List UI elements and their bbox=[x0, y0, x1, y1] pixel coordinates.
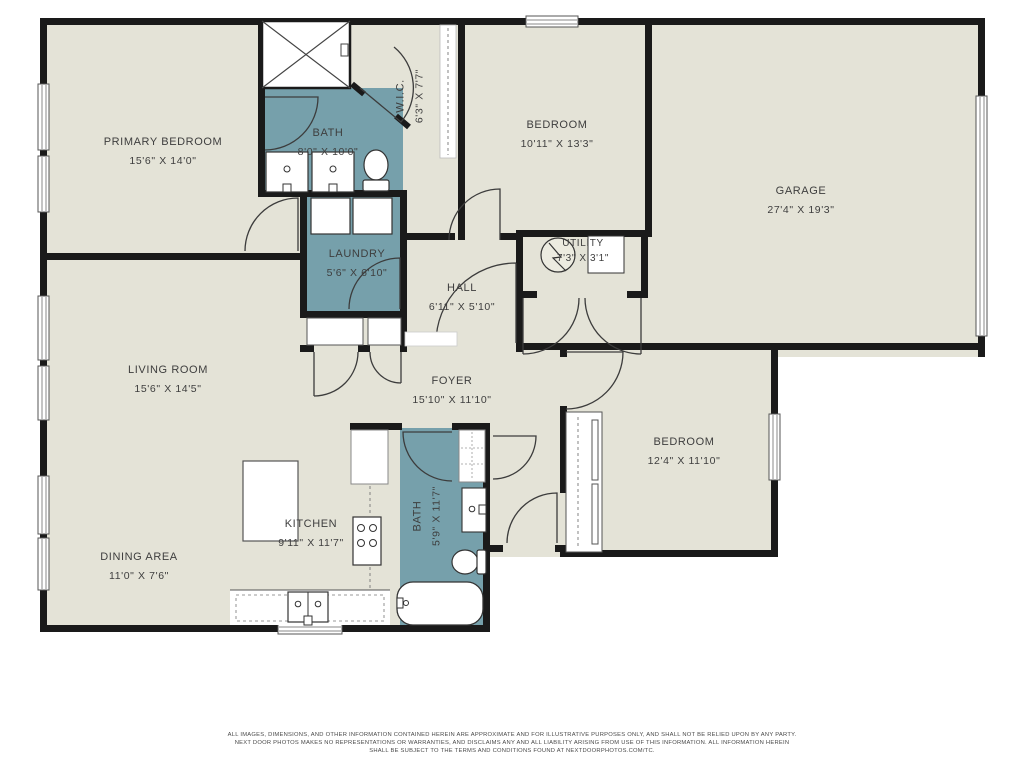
stove-icon bbox=[353, 517, 381, 565]
window-icon bbox=[526, 16, 578, 27]
room-label-bath-lower: BATH 5'9" X 11'7" bbox=[408, 486, 447, 546]
room-label-foyer: FOYER 15'10" X 11'10" bbox=[412, 371, 491, 410]
disclaimer-line: SHALL BE SUBJECT TO THE TERMS AND CONDIT… bbox=[0, 747, 1024, 755]
closet-icon bbox=[368, 318, 401, 345]
threshold bbox=[405, 332, 457, 346]
window-icon bbox=[38, 84, 49, 150]
closet-icon bbox=[307, 318, 363, 345]
window-icon bbox=[976, 96, 987, 336]
toilet-icon bbox=[363, 150, 389, 191]
room-label-garage: GARAGE 27'4" X 19'3" bbox=[767, 181, 834, 220]
window-icon bbox=[38, 296, 49, 360]
window-icon bbox=[38, 476, 49, 534]
shower-icon bbox=[262, 21, 350, 88]
disclaimer-line: ALL IMAGES, DIMENSIONS, AND OTHER INFORM… bbox=[0, 731, 1024, 739]
disclaimer-line: NEXT DOOR PHOTOS MAKES NO REPRESENTATION… bbox=[0, 739, 1024, 747]
room-label-bedroom-right: BEDROOM 12'4" X 11'10" bbox=[648, 432, 721, 471]
room-label-bath-primary: BATH 8'0" X 10'0" bbox=[298, 123, 359, 162]
room-label-laundry: LAUNDRY 5'6" X 6'10" bbox=[327, 244, 388, 283]
room-label-kitchen: KITCHEN 9'11" X 11'7" bbox=[278, 514, 344, 553]
floor-areas bbox=[40, 18, 985, 632]
wardrobe-icon bbox=[440, 25, 456, 158]
room-label-dining-area: DINING AREA 11'0" X 7'6" bbox=[100, 547, 178, 586]
room-label-utility: UTILITY 7'3" X 3'1" bbox=[557, 236, 609, 266]
room-label-hall: HALL 6'11" X 5'10" bbox=[429, 278, 495, 317]
wardrobe-icon bbox=[566, 412, 602, 552]
pantry-icon bbox=[459, 430, 485, 482]
window-icon bbox=[38, 366, 49, 420]
kitchen-sink-icon bbox=[288, 592, 328, 625]
room-label-primary-bedroom: PRIMARY BEDROOM 15'6" X 14'0" bbox=[104, 132, 223, 171]
sink-icon bbox=[462, 488, 486, 532]
room-label-wic: W.I.C. 6'3" X 7'7" bbox=[391, 69, 430, 123]
window-icon bbox=[38, 538, 49, 590]
bathtub-icon bbox=[397, 582, 483, 625]
room-label-bedroom-top: BEDROOM 10'11" X 13'3" bbox=[521, 115, 594, 154]
floor-plan-page: PRIMARY BEDROOM 15'6" X 14'0" BATH 8'0" … bbox=[0, 0, 1024, 768]
washer-icon bbox=[311, 198, 350, 234]
window-icon bbox=[38, 156, 49, 212]
toilet-icon bbox=[452, 550, 486, 574]
disclaimer: ALL IMAGES, DIMENSIONS, AND OTHER INFORM… bbox=[0, 731, 1024, 755]
dryer-icon bbox=[353, 198, 392, 234]
room-label-living-room: LIVING ROOM 15'6" X 14'5" bbox=[128, 360, 208, 399]
window-icon bbox=[769, 414, 780, 480]
